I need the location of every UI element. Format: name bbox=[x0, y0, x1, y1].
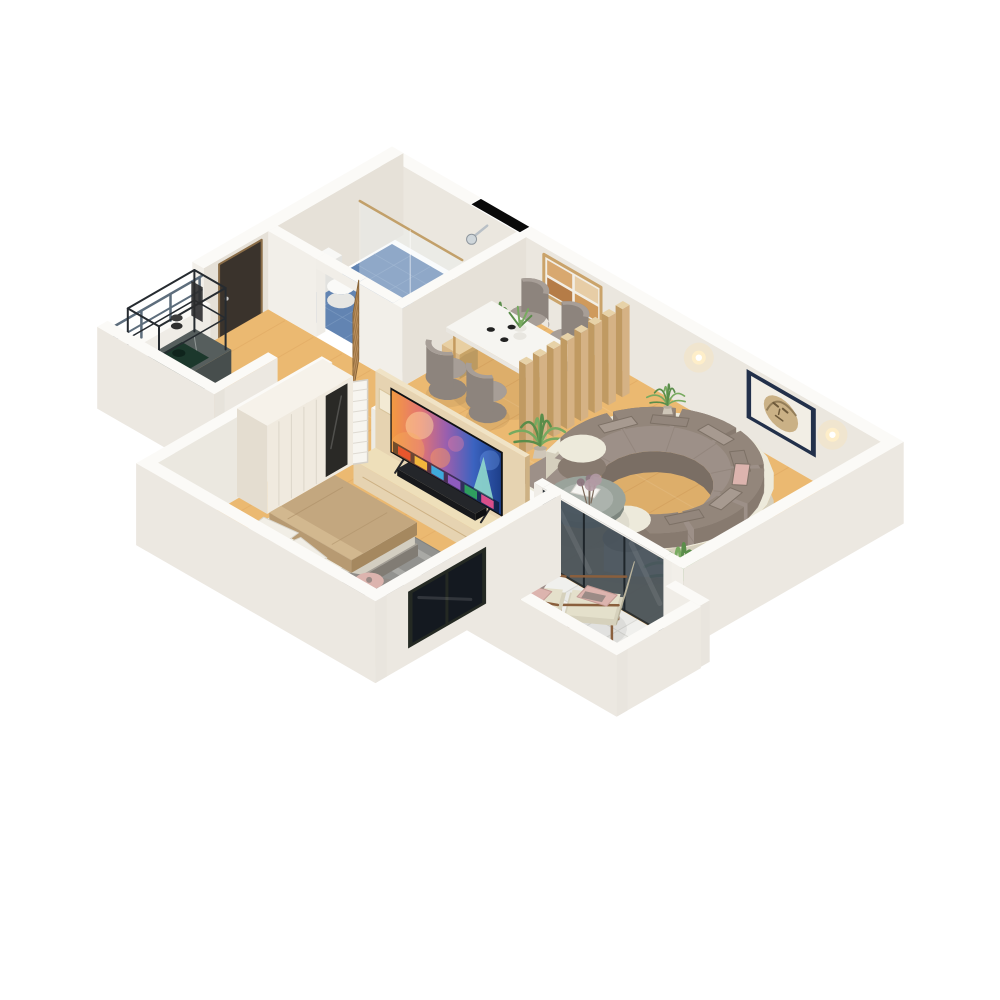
apartment-3d-render bbox=[0, 0, 1000, 1000]
sconce-left bbox=[684, 343, 714, 373]
sconce-right bbox=[817, 420, 847, 450]
floor-plan-canvas bbox=[0, 0, 1000, 1000]
